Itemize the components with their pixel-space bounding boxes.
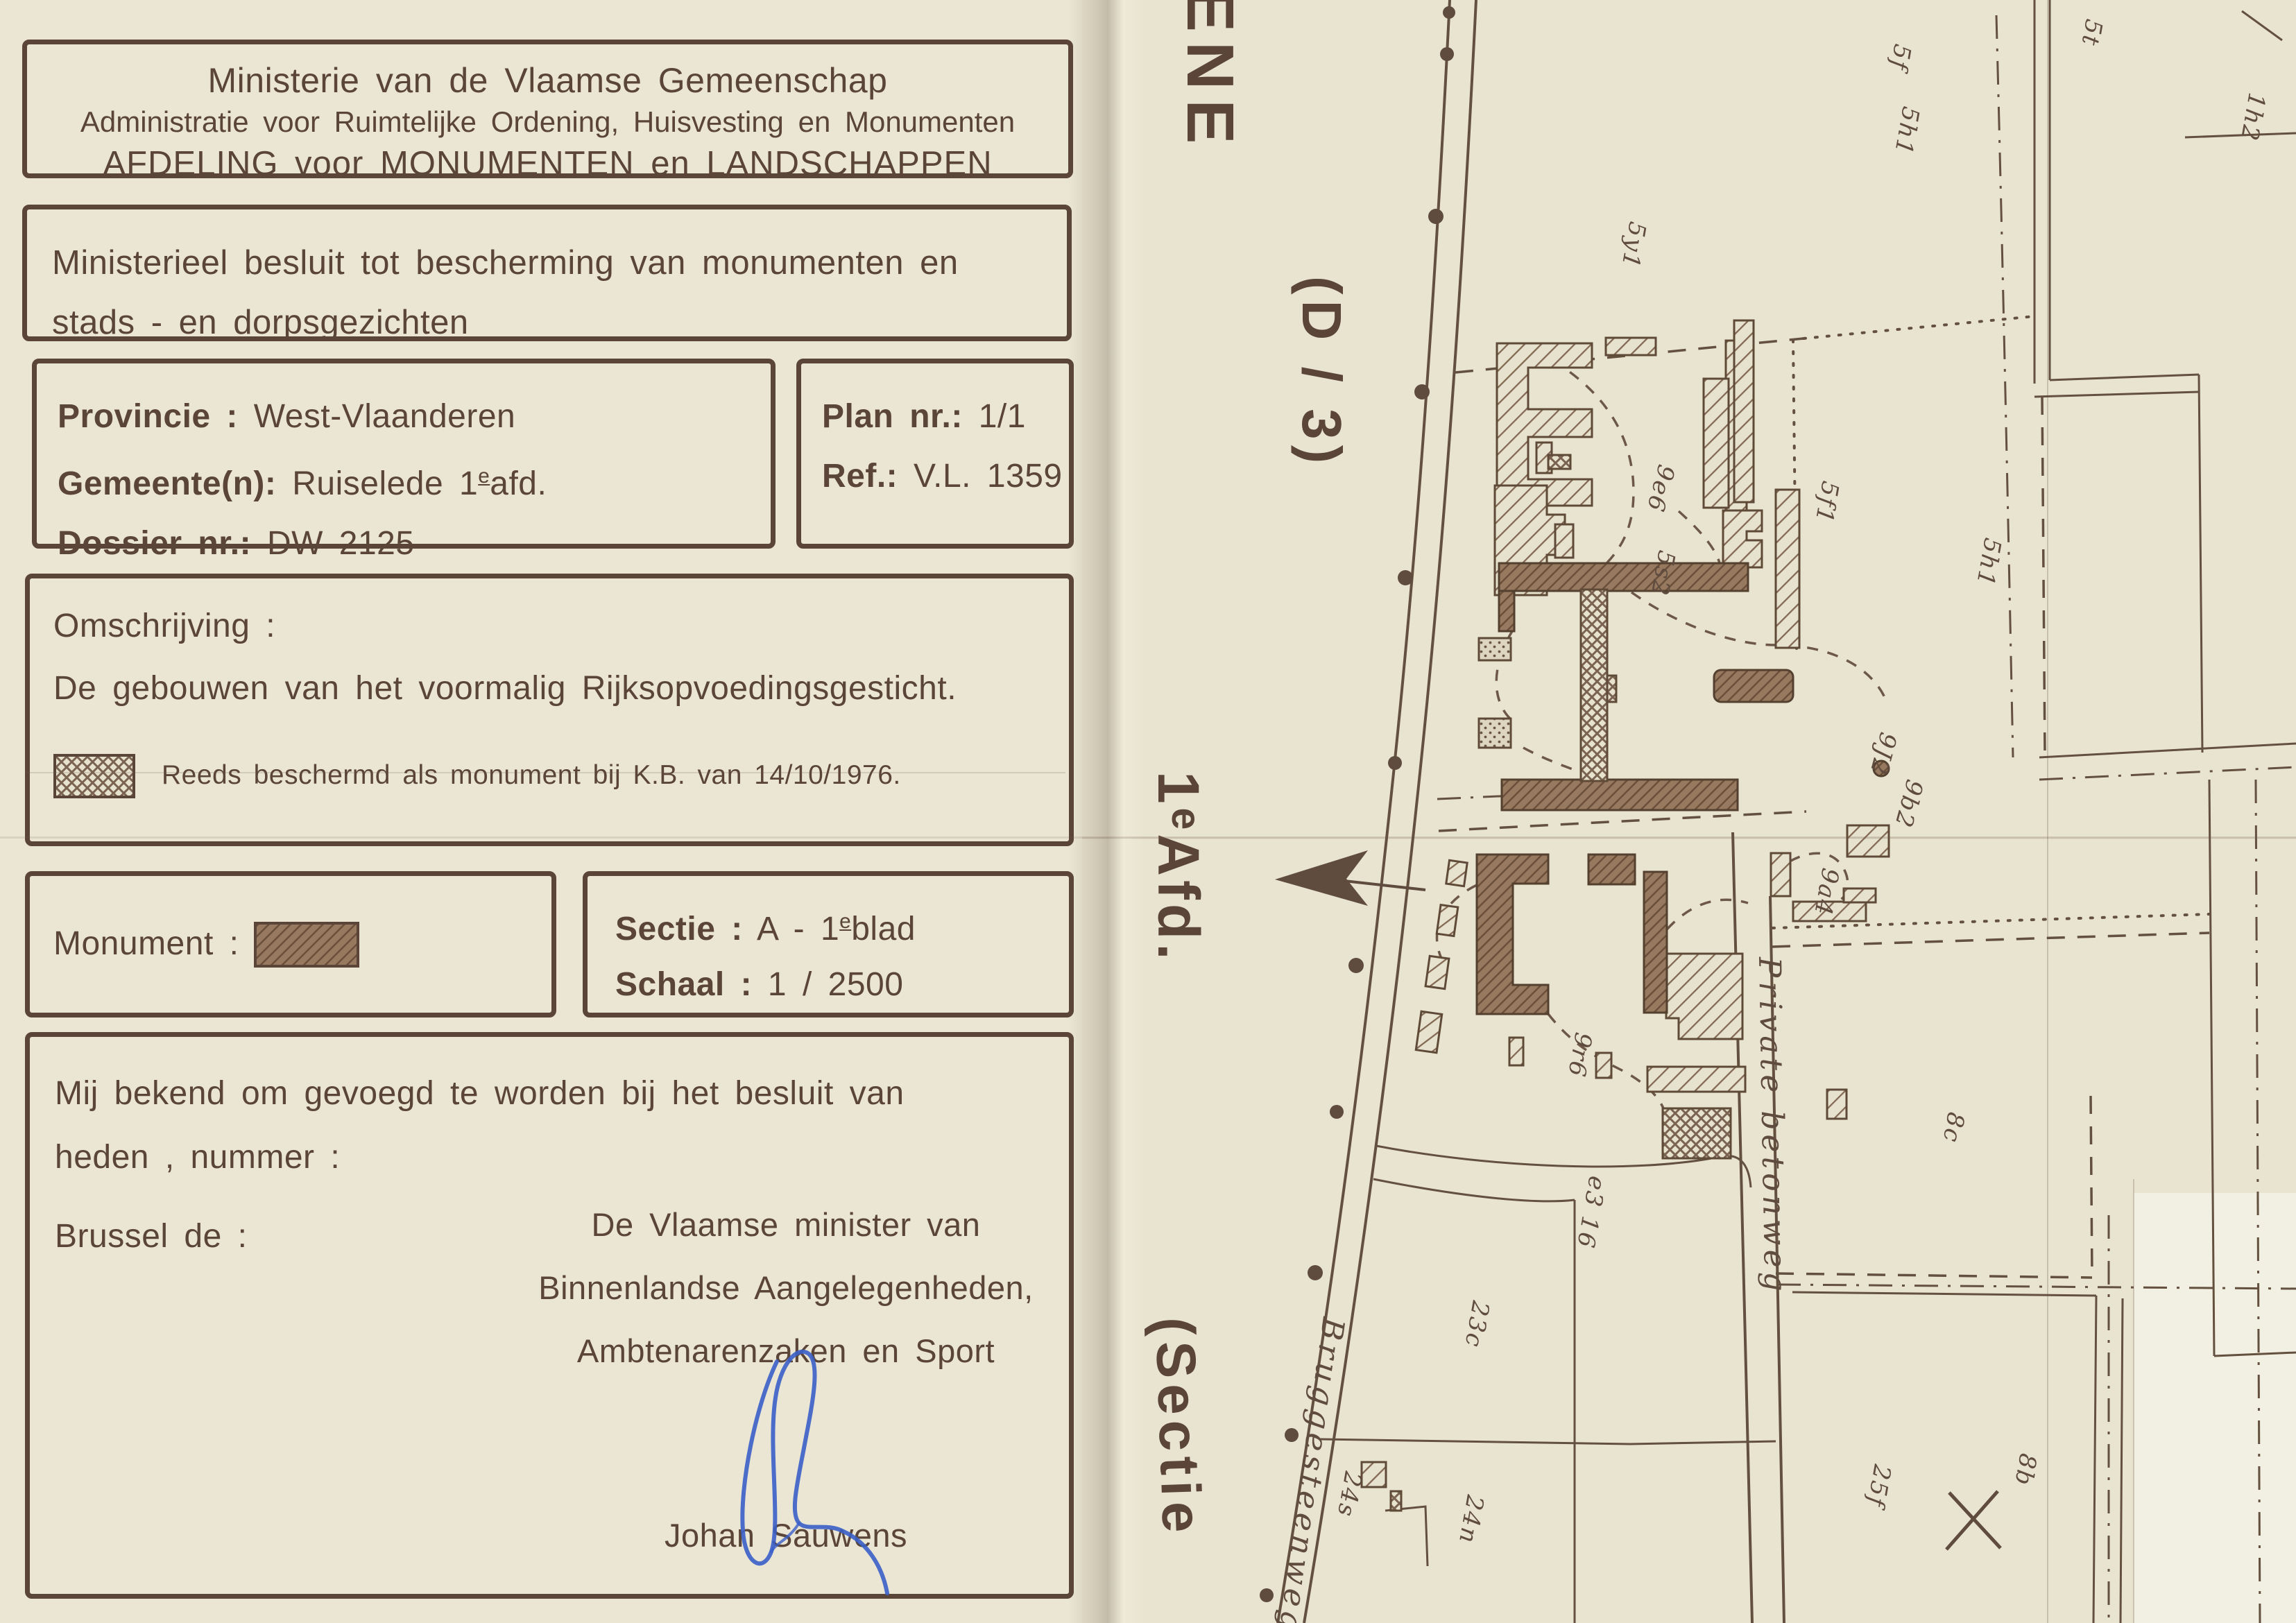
map-sectie-label: (Sectie <box>1144 1316 1213 1538</box>
description-title: Omschrijving : <box>53 605 1069 648</box>
cadastral-map: ENE (D / 3) 1ᵉAfd. (Sectie Bruggesteenwe… <box>1082 0 2296 1623</box>
map-plan-ref-label: (D / 3) <box>1291 276 1353 469</box>
protected-legend-text: Reeds beschermd als monument bij K.B. va… <box>162 758 901 793</box>
header-box: Ministerie van de Vlaamse Gemeenschap Ad… <box>22 40 1073 178</box>
decree-title-box: Ministerieel besluit tot bescherming van… <box>22 205 1072 341</box>
description-box: Omschrijving : De gebouwen van het voorm… <box>25 574 1074 846</box>
plan-row: Plan nr.: 1/1 <box>822 387 1069 447</box>
minister-signature <box>694 1335 923 1620</box>
map-paper <box>1082 0 2296 1623</box>
scanned-decree-page: { "header_box": { "line1": "Ministerie v… <box>0 0 2296 1623</box>
monument-legend-box: Monument : <box>25 871 556 1017</box>
scale-row: Schaal : 1 / 2500 <box>615 957 1069 1013</box>
crosshatch-swatch <box>53 754 135 798</box>
plan-box: Plan nr.: 1/1 Ref.: V.L. 1359 <box>796 359 1074 549</box>
ref-row: Ref.: V.L. 1359 <box>822 447 1069 506</box>
dossier-row: Dossier nr.: DW 2125 <box>58 514 771 574</box>
known-paragraph: Mij bekend om gevoegd te worden bij het … <box>55 1062 1069 1190</box>
sheet-backing <box>2134 1193 2296 1623</box>
horizontal-crease <box>0 836 2296 839</box>
page-fold-shadow <box>1068 0 1145 1623</box>
municipality-row: Gemeente(n): Ruiselede 1eafd. <box>58 447 771 514</box>
protected-legend-row: Reeds beschermd als monument bij K.B. va… <box>53 754 1069 798</box>
box-crease <box>25 772 1065 773</box>
province-row: Provincie : West-Vlaanderen <box>58 387 771 447</box>
parcel-label: 8c <box>1937 1110 1969 1145</box>
monument-swatch <box>254 922 359 968</box>
parcel-label: 8b <box>2009 1451 2042 1488</box>
map-top-label: ENE <box>1173 0 1247 153</box>
ministry-title: Ministerie van de Vlaamse Gemeenschap <box>27 60 1068 101</box>
decree-line2: stads - en dorpsgezichten <box>52 293 1067 352</box>
map-afdeling-label: 1ᵉAfd. <box>1146 771 1211 964</box>
section-box: Sectie : A - 1eblad Schaal : 1 / 2500 <box>583 871 1074 1017</box>
decree-line1: Ministerieel besluit tot bescherming van… <box>52 233 1067 293</box>
private-road-label: Private betonweg <box>1751 956 1793 1296</box>
province-box: Provincie : West-Vlaanderen Gemeente(n):… <box>32 359 776 549</box>
monument-label: Monument : <box>53 922 239 965</box>
description-text: De gebouwen van het voormalig Rijksopvoe… <box>53 667 1069 710</box>
parcel-label: 5t <box>2075 17 2107 49</box>
section-row: Sectie : A - 1eblad <box>615 894 1069 957</box>
administration-title: Administratie voor Ruimtelijke Ordening,… <box>27 101 1068 143</box>
division-title: AFDELING voor MONUMENTEN en LANDSCHAPPEN <box>27 143 1068 184</box>
